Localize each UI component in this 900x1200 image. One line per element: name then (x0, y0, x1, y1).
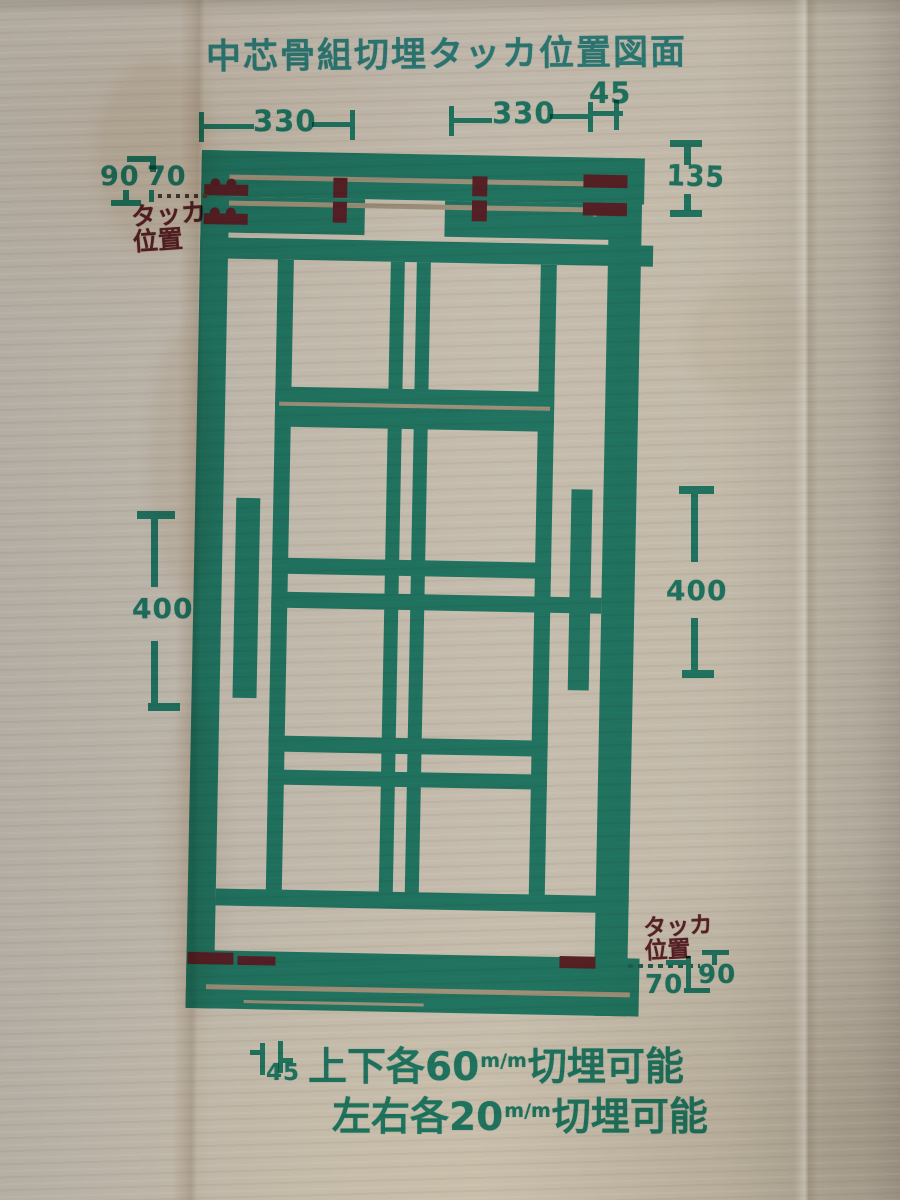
dim-400-left: 400 (132, 592, 193, 625)
stapler-position-label-top: タッカ 位置 (130, 200, 208, 254)
left-inner-stile (266, 260, 294, 892)
left-filler-block (232, 498, 260, 698)
upper-rail (200, 237, 653, 267)
cross-rail-2-upper (272, 557, 551, 578)
dim-45-top: 45 (589, 76, 631, 110)
drawing-title: 中芯骨組切埋タッカ位置図面 (206, 23, 688, 79)
dim-90-bottom: 90 (698, 960, 736, 990)
note-text: 左右各20 (332, 1095, 503, 1140)
right-inner-stile (529, 265, 557, 897)
staple-mark-top-mid-left (333, 178, 347, 198)
staple-mark-top-mid-left (333, 202, 347, 223)
dim-135-right: 135 (666, 158, 726, 194)
dim-400-right: 400 (666, 574, 727, 607)
cross-rail-3-upper (268, 735, 547, 756)
stapler-label-line2: 位置 (644, 937, 714, 963)
stapler-position-label-bottom: タッカ 位置 (643, 914, 714, 963)
left-outer-stile (186, 150, 230, 1008)
note-top-bottom-trim: 上下各60m/m切埋可能 (308, 1036, 684, 1092)
staple-mark-top-left-2 (204, 213, 248, 225)
dim-330-left: 330 (253, 104, 317, 138)
bottom-rail (216, 888, 629, 913)
cross-rail-2-lower (271, 591, 601, 613)
dim-330-right: 330 (492, 96, 556, 130)
mm-unit: m/m (504, 1100, 551, 1122)
staple-mark-bottom-right (559, 956, 595, 969)
staple-mark-bottom-left (237, 956, 275, 966)
staple-mark-top-left-1 (204, 184, 248, 196)
right-filler-block (568, 489, 593, 690)
note-text: 切埋可能 (552, 1095, 708, 1140)
staple-mark-bottom-left (187, 952, 233, 965)
dim-90-top-left: 90 (100, 161, 140, 192)
cross-rail-3-lower (268, 769, 547, 789)
mm-unit: m/m (480, 1050, 527, 1072)
dim-45-bottom: 45 (266, 1060, 300, 1086)
staple-mark-top-mid-right (472, 200, 487, 221)
dim-70-bottom: 70 (645, 970, 683, 1000)
staple-mark-top-right-2 (583, 202, 627, 216)
stapler-label-line2: 位置 (132, 225, 209, 255)
centre-mullion-a (379, 262, 405, 894)
centre-mullion-b (405, 262, 431, 894)
note-text: 上下各60 (308, 1045, 479, 1090)
dim-70-top-left: 70 (147, 161, 187, 192)
staple-mark-top-mid-right (472, 176, 487, 196)
cardboard-photo: 中芯骨組切埋タッカ位置図面 330 330 45 135 90 70 400 4… (0, 0, 900, 1200)
right-outer-stile (593, 158, 642, 1016)
staple-mark-top-right-1 (583, 174, 627, 188)
note-text: 切埋可能 (528, 1045, 684, 1090)
note-left-right-trim: 左右各20m/m切埋可能 (332, 1086, 708, 1142)
door-core-frame (186, 150, 655, 1017)
